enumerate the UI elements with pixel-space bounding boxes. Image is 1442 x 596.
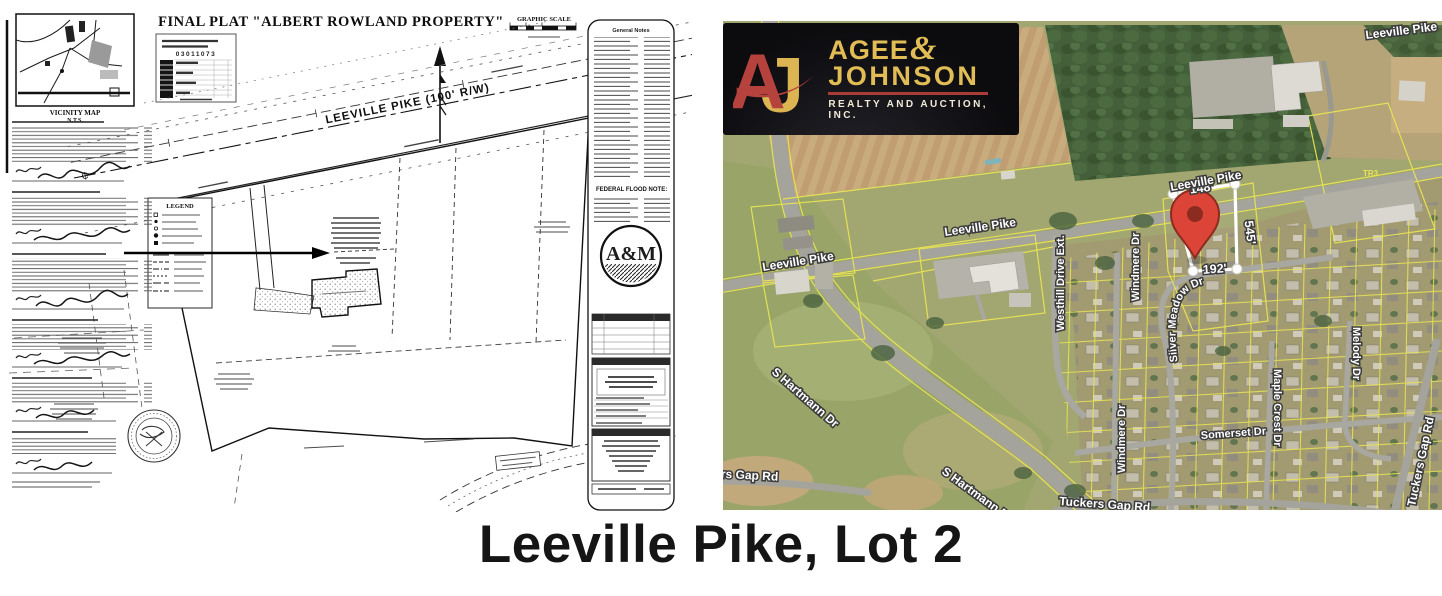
logo-name-line2: JOHNSON xyxy=(828,63,979,89)
logo-divider xyxy=(828,92,988,95)
lot-dim-side-right: 545' xyxy=(1242,220,1259,245)
logo-name-line1: AGEE xyxy=(828,38,909,63)
logo-ampersand: & xyxy=(910,38,937,60)
street-label-melody: Melody Dr xyxy=(1350,327,1362,381)
stamp-number: 03011073 xyxy=(176,51,217,58)
notes-header: General Notes xyxy=(612,28,649,34)
asm-seal-monogram: A&M xyxy=(606,243,656,265)
street-label-maple-crest: Maple Crest Dr xyxy=(1271,369,1283,447)
vicinity-map-label: VICINITY MAP xyxy=(50,109,101,117)
realtor-logo: J A AGEE& JOHNSON REALTY AND AUCTION, IN… xyxy=(723,23,1019,135)
street-label-windmere-1: Windmere Dr xyxy=(1130,232,1142,301)
vicinity-map-scale: N.T.S. xyxy=(67,118,83,124)
logo-monogram-a: A xyxy=(733,37,786,125)
aerial-map: TR3 xyxy=(723,21,1442,510)
plat-document: VICINITY MAP N.T.S. FINAL PLAT "ALBERT R… xyxy=(4,8,692,512)
logo-monogram: J A xyxy=(733,30,820,128)
plat-title: FINAL PLAT "ALBERT ROWLAND PROPERTY" xyxy=(158,14,504,30)
plat-drawing: VICINITY MAP N.T.S. FINAL PLAT "ALBERT R… xyxy=(4,8,692,512)
legend-label: LEGEND xyxy=(166,203,194,210)
listing-title: Leeville Pike, Lot 2 xyxy=(0,514,1442,575)
lot-dim-rear: 192' xyxy=(1202,261,1227,277)
flood-note-label: FEDERAL FLOOD NOTE: xyxy=(596,187,667,193)
street-label-windmere-2: Windmere Dr xyxy=(1116,404,1128,473)
flyer: VICINITY MAP N.T.S. FINAL PLAT "ALBERT R… xyxy=(0,0,1442,596)
notes-column: General Notes FEDERAL FLOOD NOTE: A&M xyxy=(588,20,674,510)
parcel-tag: TR3 xyxy=(1363,169,1379,178)
logo-tagline: REALTY AND AUCTION, INC. xyxy=(828,99,1009,121)
street-label-westhill: Westhill Drive Ext. xyxy=(1055,235,1067,331)
stamp-block: 03011073 xyxy=(156,34,236,102)
